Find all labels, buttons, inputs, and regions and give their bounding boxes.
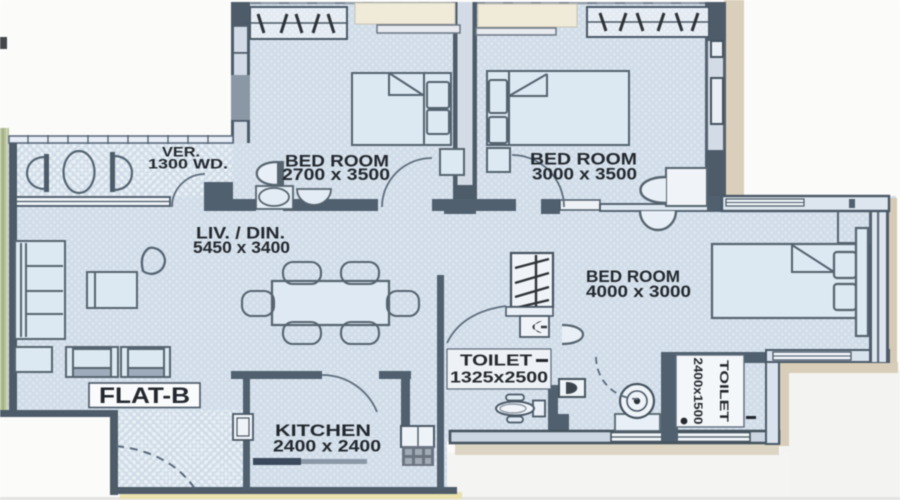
- svg-text:2700 x 3500: 2700 x 3500: [282, 165, 390, 184]
- svg-text:3000 x 3500: 3000 x 3500: [532, 165, 637, 184]
- svg-text:2400x1500: 2400x1500: [691, 358, 705, 425]
- svg-text:FLAT-B: FLAT-B: [99, 383, 190, 408]
- svg-text:1300 WD.: 1300 WD.: [148, 156, 228, 172]
- svg-text:2400 x 2400: 2400 x 2400: [273, 437, 381, 456]
- svg-text:TOILET: TOILET: [717, 360, 731, 423]
- svg-text:5450 x 3400: 5450 x 3400: [193, 238, 290, 257]
- svg-text:TOILET: TOILET: [460, 353, 532, 370]
- svg-text:4000 x 3000: 4000 x 3000: [586, 282, 691, 301]
- svg-text:1325x2500: 1325x2500: [450, 370, 548, 387]
